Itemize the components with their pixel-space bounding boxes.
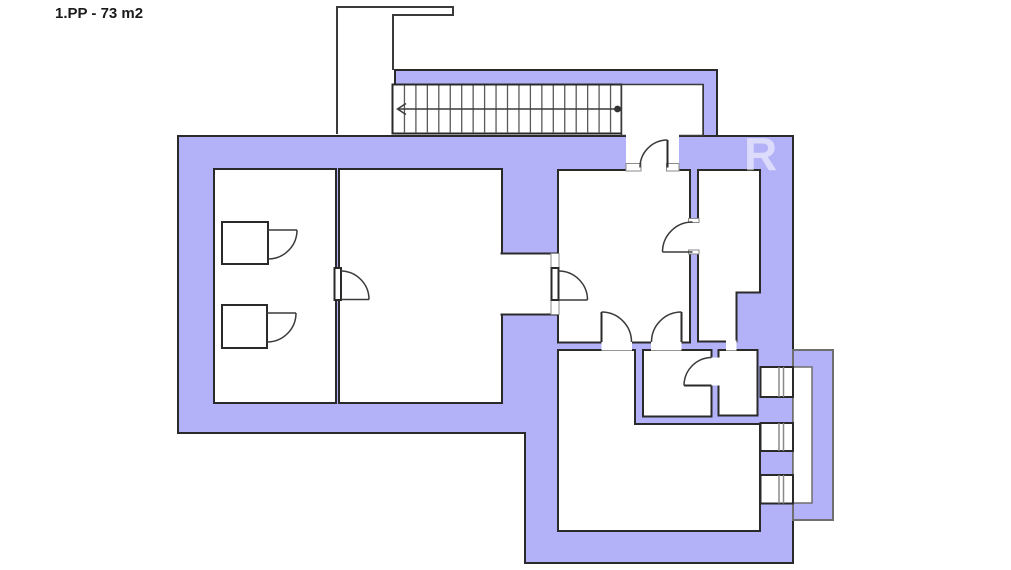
watermark: R [744,128,777,180]
bay-structure [793,350,833,520]
room-utility [214,169,336,403]
bay-interior [793,367,812,503]
room-stair-landing [622,85,704,136]
window-2 [761,423,794,451]
window-1 [761,367,794,397]
stair-start-marker [614,106,621,113]
door-leaf [552,268,559,300]
floor-plan-drawing: R [0,0,1011,570]
fixture-body [222,305,267,348]
floor-plan-canvas: 1.PP - 73 m2 [0,0,1011,570]
opening-right-room-room-b [726,341,737,351]
room-main [339,169,502,403]
staircase [393,85,622,134]
door-sill [626,164,641,172]
passage-opening [501,254,560,315]
window-3 [761,475,794,504]
door-entrance [626,134,679,172]
fixture-body [222,222,268,264]
room-hallway [558,170,690,343]
door-leaf [335,268,342,300]
room-small-b [719,350,758,416]
